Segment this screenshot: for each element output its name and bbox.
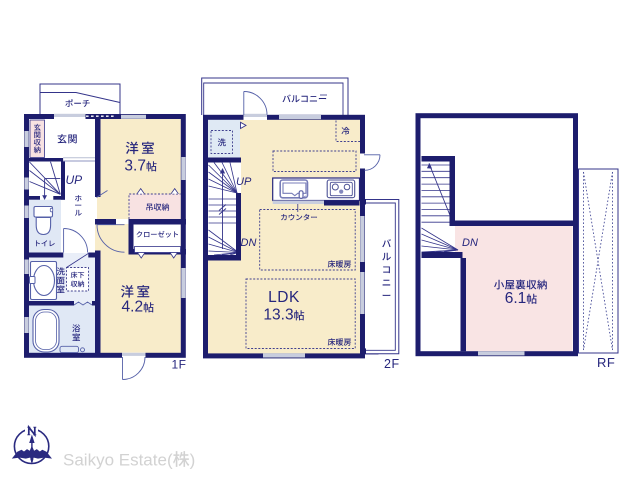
svg-text:4.2帖: 4.2帖 <box>122 299 155 316</box>
svg-text:ー: ー <box>382 288 392 302</box>
svg-text:UP: UP <box>66 173 83 187</box>
svg-text:床暖房: 床暖房 <box>328 259 352 270</box>
svg-text:吊収納: 吊収納 <box>146 202 170 213</box>
svg-text:DN: DN <box>462 237 478 249</box>
svg-text:ニ: ニ <box>382 275 392 289</box>
svg-text:DN: DN <box>241 237 257 249</box>
svg-text:カウンター: カウンター <box>280 212 318 223</box>
svg-text:納: 納 <box>34 146 41 156</box>
svg-text:洋室: 洋室 <box>125 137 157 157</box>
svg-text:13.3帖: 13.3帖 <box>263 307 304 324</box>
svg-text:洗: 洗 <box>217 137 226 149</box>
svg-text:ル: ル <box>75 207 83 218</box>
svg-text:トイレ: トイレ <box>34 239 56 249</box>
svg-text:冷: 冷 <box>341 125 350 137</box>
svg-text:室: 室 <box>72 332 81 344</box>
svg-text:ポーチ: ポーチ <box>65 97 91 109</box>
svg-text:収納: 収納 <box>71 280 85 290</box>
svg-text:洋室: 洋室 <box>121 281 153 301</box>
svg-text:室: 室 <box>56 284 65 296</box>
svg-text:ル: ル <box>382 249 392 263</box>
svg-text:RF: RF <box>597 355 615 370</box>
svg-text:1F: 1F <box>172 358 187 372</box>
svg-text:玄関: 玄関 <box>57 131 78 146</box>
svg-text:UP: UP <box>236 176 252 188</box>
svg-text:クローゼット: クローゼット <box>136 230 179 240</box>
svg-text:2F: 2F <box>384 357 400 371</box>
svg-text:3.7帖: 3.7帖 <box>124 158 157 175</box>
svg-text:バ: バ <box>382 236 392 250</box>
svg-text:バルコニー: バルコニー <box>282 92 327 105</box>
svg-text:6.1帖: 6.1帖 <box>505 290 538 307</box>
svg-text:コ: コ <box>382 262 392 276</box>
svg-text:LDK: LDK <box>268 289 300 306</box>
svg-text:床暖房: 床暖房 <box>328 337 352 348</box>
